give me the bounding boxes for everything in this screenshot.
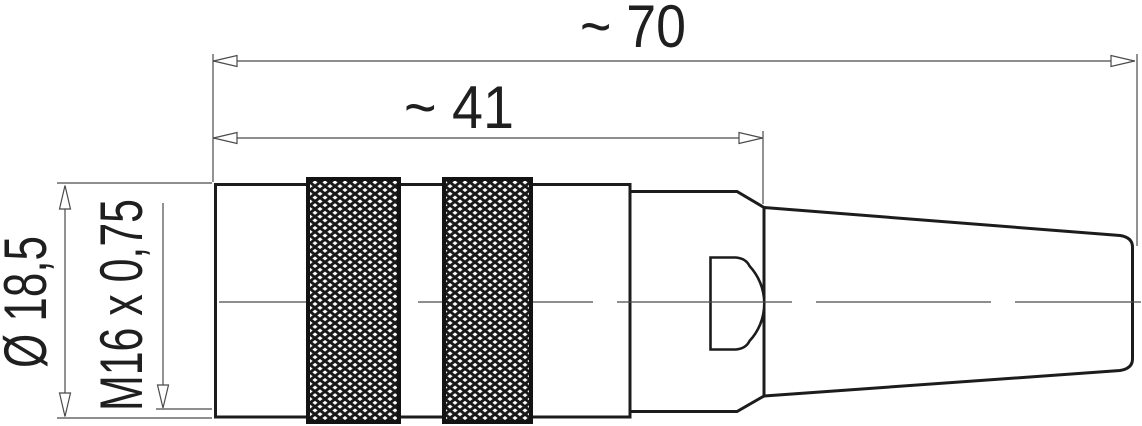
drawing-canvas: ~ 70 ~ 41 Ø 18,5 M16 x 0,75 [0,0,1142,426]
knurl-band-rear [444,179,531,422]
arrowhead-down-icon [60,393,71,417]
connector-body [216,185,631,418]
dim-label-outer-diameter: Ø 18,5 [0,236,59,368]
dim-label-thread: M16 x 0,75 [88,199,155,411]
arrowhead-down-icon [158,385,169,408]
dimension-thread: M16 x 0,75 [88,199,212,411]
arrowhead-up-icon [60,186,71,210]
arrowhead-right-icon [1111,56,1135,67]
dim-label-body-length: ~ 41 [404,74,514,141]
arrowhead-right-icon [739,133,763,144]
arrowhead-left-icon [214,56,238,67]
dim-label-total-length: ~ 70 [580,0,686,60]
arrowhead-left-icon [214,133,238,144]
knurl-band-front [308,179,399,422]
connector-technical-drawing: ~ 70 ~ 41 Ø 18,5 M16 x 0,75 [0,0,1142,426]
